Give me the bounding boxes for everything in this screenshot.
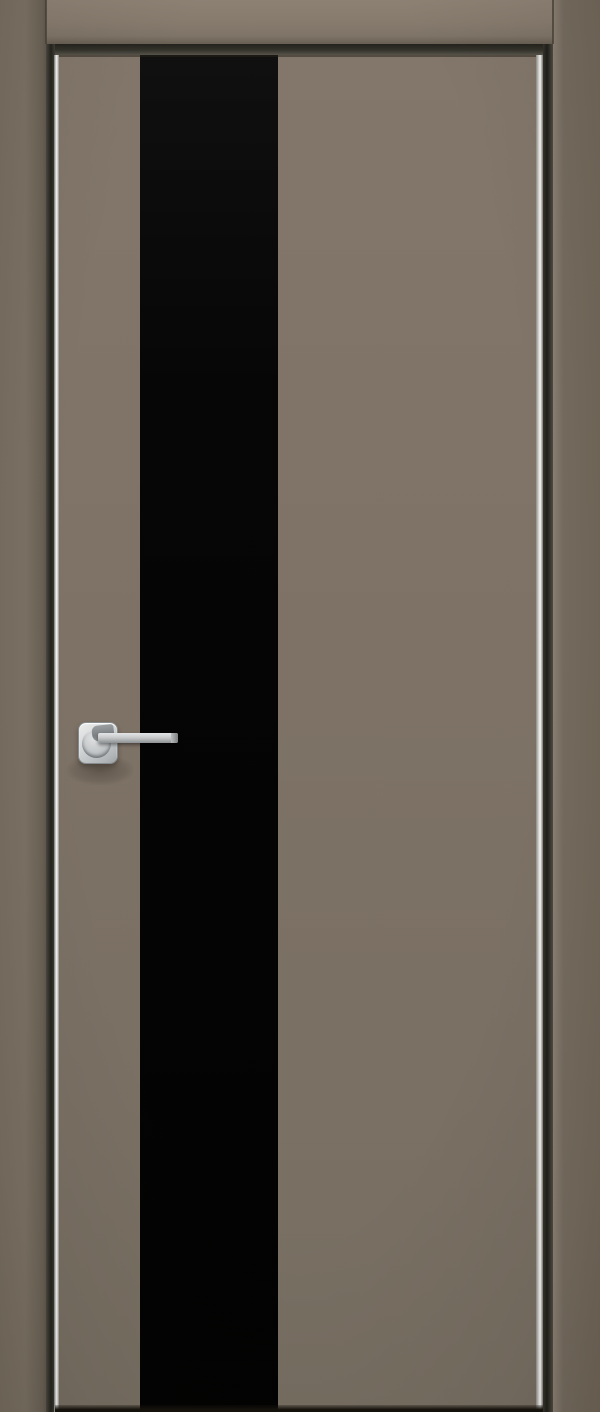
aluminum-edge-left bbox=[54, 55, 59, 1412]
door-leaf bbox=[55, 55, 543, 1412]
frame-joint-right bbox=[552, 0, 554, 44]
reveal-gap-top bbox=[46, 44, 553, 55]
frame-joint-left bbox=[45, 0, 47, 44]
aluminum-edge-right bbox=[536, 55, 543, 1412]
door-top-edge bbox=[55, 55, 543, 57]
frame-jamb-right bbox=[553, 0, 600, 1412]
floor-shadow bbox=[55, 1405, 543, 1412]
door-product-photo bbox=[0, 0, 600, 1412]
handle-lever bbox=[98, 733, 178, 743]
frame-head-jamb bbox=[46, 0, 553, 44]
reveal-gap-right bbox=[543, 44, 553, 1412]
frame-jamb-left bbox=[0, 0, 46, 1412]
handle-lever-tip bbox=[171, 733, 178, 743]
